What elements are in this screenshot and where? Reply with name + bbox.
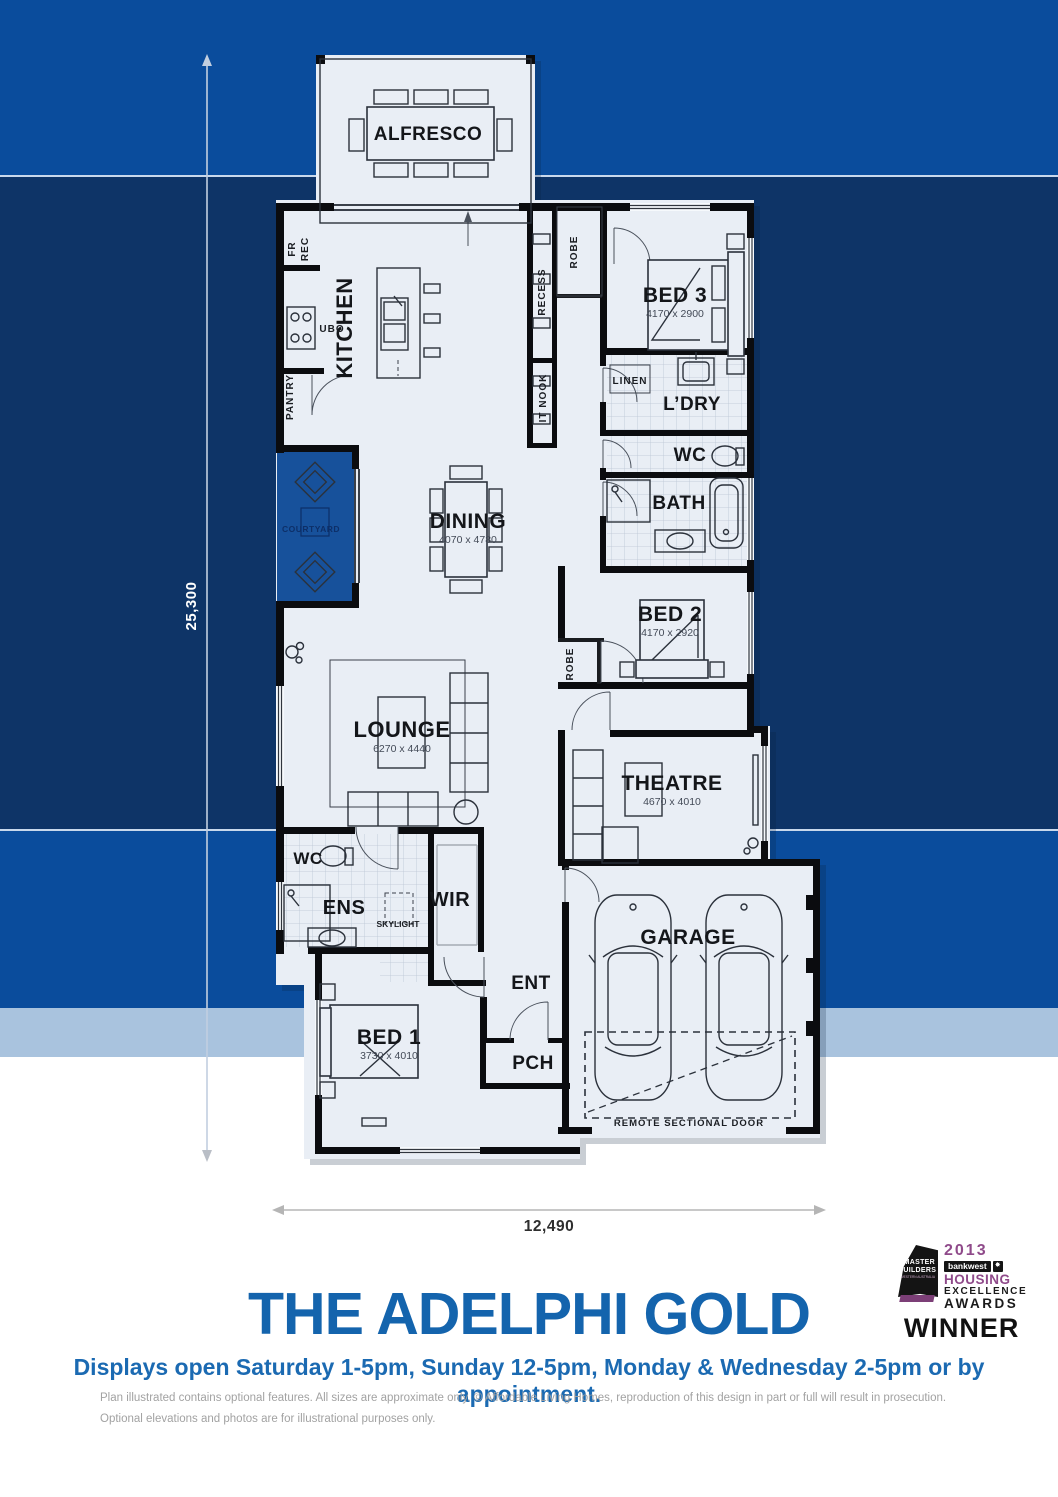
flyer-page: ALFRESCO KITCHEN FR REC UBO PANTRY RECES… bbox=[0, 0, 1058, 1497]
pch-label: PCH bbox=[512, 1053, 554, 1074]
dining-label: DINING bbox=[430, 510, 507, 533]
pantry-label: PANTRY bbox=[285, 374, 296, 420]
western-australia-shape-icon: MASTER BUILDERS WESTERN AUSTRALIA bbox=[898, 1245, 938, 1297]
bed3-dims: 4170 x 2900 bbox=[646, 308, 704, 320]
master-builders-logo: MASTER BUILDERS WESTERN AUSTRALIA bbox=[896, 1243, 940, 1305]
robe-bed3-label: ROBE bbox=[569, 236, 580, 269]
bed2-dims: 4170 x 2920 bbox=[641, 627, 699, 639]
lounge-label: LOUNGE bbox=[353, 717, 450, 742]
master-builders-line2: BUILDERS bbox=[898, 1267, 935, 1275]
bath-label: BATH bbox=[652, 493, 705, 514]
recess-label: RECESS bbox=[537, 268, 548, 315]
bankwest-logo: bankwest bbox=[944, 1261, 991, 1272]
badge-awards: AWARDS bbox=[944, 1297, 1018, 1311]
badge-housing: HOUSING bbox=[944, 1273, 1011, 1287]
wc-label: WC bbox=[674, 445, 707, 466]
ubo-label: UBO bbox=[319, 324, 344, 335]
fine-print-line-2: Optional elevations and photos are for i… bbox=[100, 1409, 950, 1430]
theatre-dims: 4670 x 4010 bbox=[643, 796, 701, 808]
fine-print: Plan illustrated contains optional featu… bbox=[100, 1388, 950, 1431]
skylight-label: SKYLIGHT bbox=[377, 919, 421, 929]
robe-bed2-label: ROBE bbox=[565, 648, 576, 681]
badge-year: 2013 bbox=[944, 1243, 988, 1260]
wc-ens-label: WC bbox=[293, 849, 322, 868]
vertical-dimension: 25,300 bbox=[183, 54, 212, 1162]
badge-text-block: 2013 bankwest ✸ HOUSING EXCELLENCE AWARD… bbox=[944, 1243, 1027, 1312]
lounge-dims: 6270 x 4440 bbox=[373, 743, 431, 755]
horizontal-dimension-label: 12,490 bbox=[524, 1218, 574, 1235]
award-badge: MASTER BUILDERS WESTERN AUSTRALIA 2013 b… bbox=[896, 1243, 1016, 1344]
courtyard-label: COURTYARD bbox=[282, 524, 340, 534]
badge-sponsor: bankwest ✸ bbox=[944, 1261, 1003, 1272]
badge-winner: WINNER bbox=[896, 1313, 1027, 1344]
remote-door-label: REMOTE SECTIONAL DOOR bbox=[614, 1118, 764, 1129]
ens-label: ENS bbox=[323, 897, 366, 919]
horizontal-dimension: 12,490 bbox=[272, 1205, 826, 1235]
bed1-label: BED 1 bbox=[357, 1026, 421, 1049]
bed2-label: BED 2 bbox=[638, 603, 702, 626]
wir-label: WIR bbox=[430, 889, 470, 911]
laundry-label: L’DRY bbox=[663, 394, 721, 415]
rec-label: REC bbox=[300, 237, 311, 261]
garage-label: GARAGE bbox=[640, 926, 735, 949]
bed3-label: BED 3 bbox=[643, 284, 707, 307]
master-builders-line3: WESTERN AUSTRALIA bbox=[898, 1275, 935, 1279]
bankwest-sun-icon: ✸ bbox=[993, 1261, 1003, 1272]
linen-label: LINEN bbox=[613, 376, 648, 387]
ent-label: ENT bbox=[511, 973, 551, 994]
bed1-dims: 3730 x 4010 bbox=[360, 1050, 418, 1062]
dining-dims: 4070 x 4780 bbox=[439, 534, 497, 546]
alfresco-label: ALFRESCO bbox=[374, 124, 483, 145]
fine-print-line-1: Plan illustrated contains optional featu… bbox=[100, 1388, 950, 1409]
it-nook-label: IT NOOK bbox=[538, 374, 549, 423]
vertical-dimension-label: 25,300 bbox=[183, 582, 200, 631]
badge-purple-base bbox=[899, 1295, 934, 1302]
master-builders-line1: MASTER bbox=[898, 1259, 935, 1267]
theatre-label: THEATRE bbox=[621, 772, 722, 795]
fr-label: FR bbox=[287, 241, 298, 256]
